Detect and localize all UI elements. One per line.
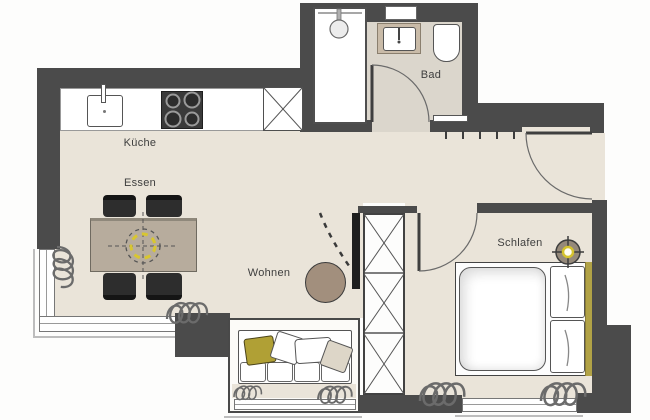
wall-right-low	[592, 325, 631, 398]
wall-entry-corner	[590, 103, 604, 133]
coat-hook	[513, 131, 515, 139]
bed-pillow	[550, 320, 585, 373]
wall-corridor-top	[478, 103, 604, 127]
round-side-table	[305, 262, 346, 303]
sofa-cushion	[267, 362, 293, 382]
wash-basin	[383, 27, 416, 51]
bath-mat	[433, 115, 468, 122]
room-label-wohnen: Wohnen	[248, 267, 291, 279]
coat-hook	[479, 131, 481, 139]
sink-tap	[101, 84, 106, 103]
coat-hook	[496, 131, 498, 139]
bay-floor-strip	[232, 384, 356, 398]
floor-plan: Küche Essen Wohnen Bad Schlafen	[0, 0, 650, 420]
shower	[313, 7, 367, 124]
wardrobe-column	[363, 213, 405, 395]
floor-entry-opening	[592, 133, 605, 200]
room-label-bad: Bad	[421, 69, 441, 81]
stove	[161, 91, 203, 129]
dining-chair	[146, 195, 182, 217]
dining-table	[90, 218, 197, 272]
window-sill-bedroom	[455, 415, 583, 417]
window-bedroom	[462, 398, 577, 412]
headboard	[585, 262, 592, 376]
tv-panel	[352, 213, 360, 289]
window-dining	[39, 316, 176, 332]
wall-left	[37, 68, 60, 249]
wall-bedroom-bottom-left	[357, 395, 462, 413]
wall-wardrobe-stub	[358, 206, 417, 213]
coat-hook	[462, 131, 464, 139]
window-sill-bottom-left	[33, 336, 178, 338]
wall-hook-rail	[430, 127, 522, 132]
wall-dining-bottom	[175, 313, 230, 357]
wall-top-kitchen	[37, 68, 303, 88]
floor-window-edge-strip	[55, 249, 60, 318]
dining-chair	[103, 273, 136, 300]
window-sill-bay	[224, 416, 362, 418]
room-label-essen: Essen	[124, 177, 156, 189]
room-label-schlafen: Schlafen	[497, 237, 542, 249]
room-label-kueche: Küche	[124, 137, 157, 149]
tall-cabinet-fridge	[263, 87, 303, 131]
wall-bottom-right-block	[577, 393, 631, 413]
wall-right-mid	[592, 200, 607, 325]
sink-drain-dot	[103, 110, 106, 113]
floor-corridor	[313, 127, 592, 203]
sofa-cushion	[294, 362, 320, 382]
toilet	[433, 24, 460, 62]
coat-hook	[445, 131, 447, 139]
dining-chair	[103, 195, 136, 217]
bed-pillow	[550, 266, 585, 318]
window-sill-left	[33, 249, 35, 338]
wall-bedroom-top	[477, 203, 592, 213]
bed-duvet	[459, 267, 546, 371]
dining-chair	[146, 273, 182, 300]
wall-bath-right	[462, 3, 478, 127]
window-bedroom-glazing	[463, 404, 576, 405]
bath-shelf	[385, 6, 417, 20]
window-dining-glazing	[40, 323, 175, 324]
window-bay-glazing	[235, 404, 355, 405]
